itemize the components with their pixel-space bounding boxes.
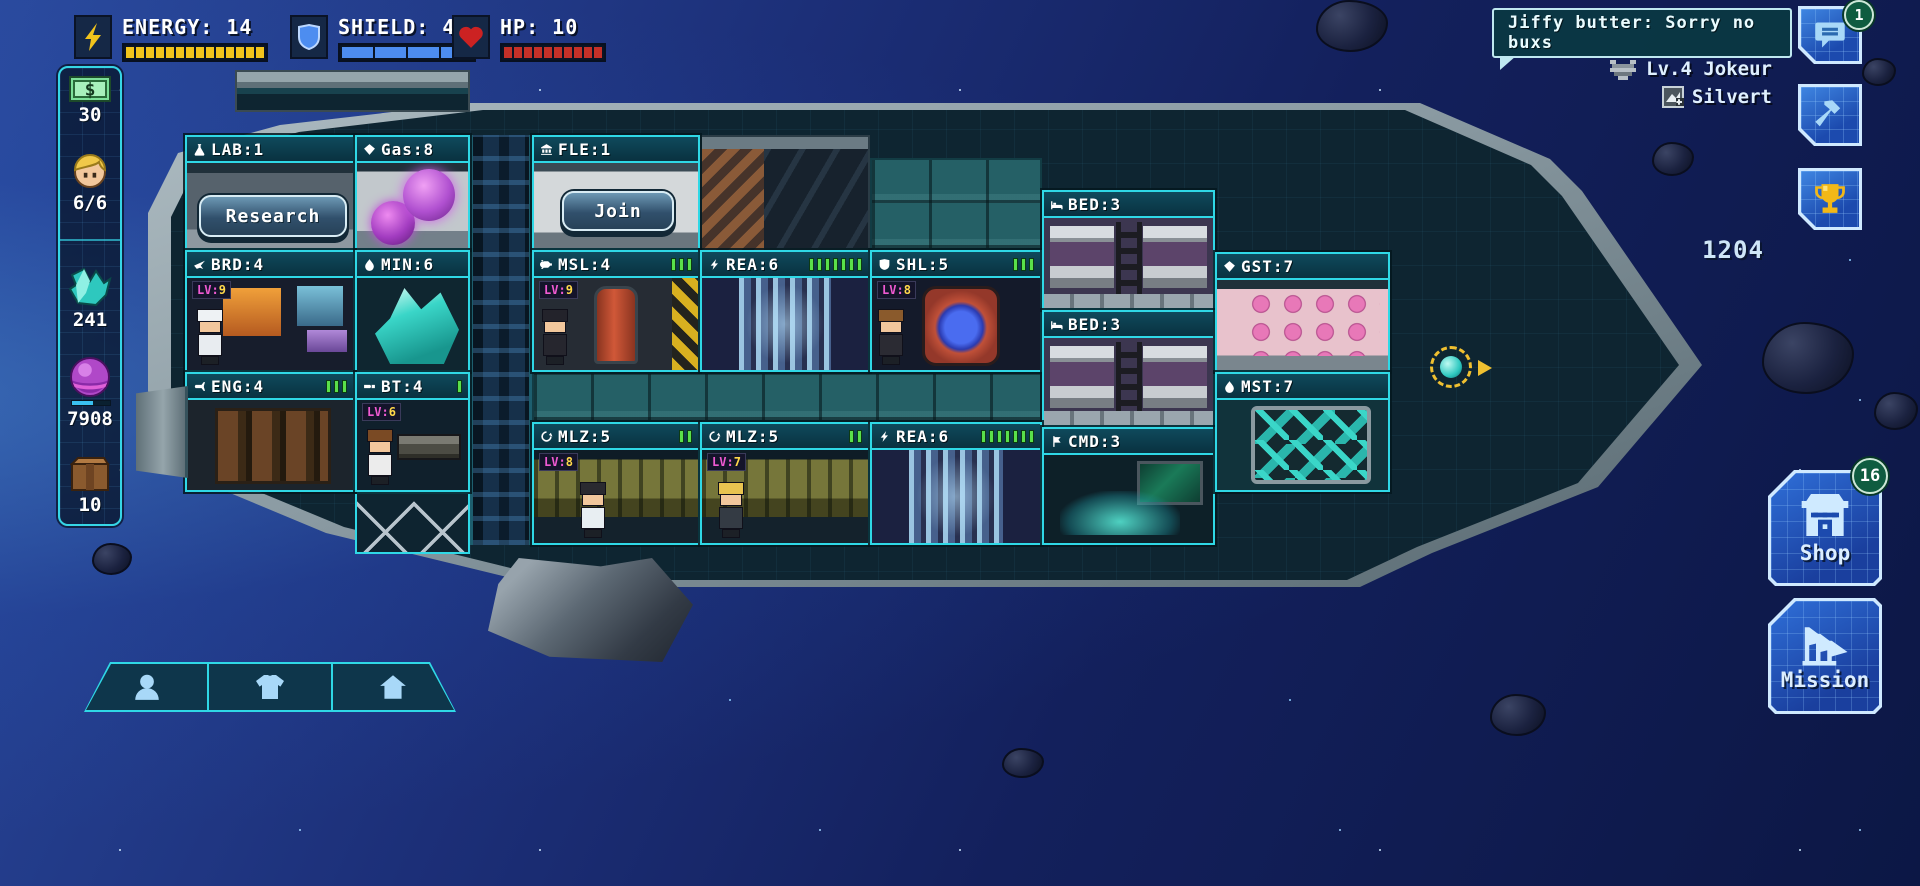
room-label: REA:6 — [896, 427, 949, 446]
mission-flags-icon — [1798, 620, 1852, 666]
shield-icon — [878, 258, 891, 271]
room-header: BED:3 — [1044, 192, 1213, 218]
room-body — [1217, 400, 1388, 490]
elevator-shaft — [470, 135, 532, 545]
build-button[interactable] — [1798, 84, 1862, 146]
power-bars — [679, 430, 692, 443]
hp-bar — [500, 43, 606, 62]
trophy-button[interactable] — [1798, 168, 1862, 230]
ship-name-row: Lv.4 Jokeur — [1608, 58, 1772, 80]
hp-status: HP: 10 — [452, 15, 606, 62]
room-body: LV:7 — [702, 450, 868, 543]
room-bt[interactable]: BT:4LV:6 — [355, 372, 470, 492]
room-header: CMD:3 — [1044, 429, 1213, 455]
xp-bar — [71, 400, 111, 406]
bunk-bed — [1143, 346, 1207, 408]
bed-icon — [1050, 198, 1063, 211]
shield-status: SHIELD: 4 — [290, 15, 476, 62]
loot-arrow-icon — [1478, 360, 1492, 376]
energy-icon — [74, 15, 112, 59]
asteroid — [1862, 58, 1896, 86]
room-gst[interactable]: GST:7 — [1215, 252, 1390, 372]
room-eng[interactable]: ENG:4 — [185, 372, 355, 492]
crew-member[interactable] — [540, 311, 570, 365]
room-cmd[interactable]: CMD:3 — [1042, 427, 1215, 545]
room-label: MST:7 — [1241, 377, 1294, 396]
energy-bar — [122, 43, 268, 62]
room-mlz2[interactable]: MLZ:5LV:7 — [700, 422, 870, 545]
chat-bubble-tail — [1500, 56, 1516, 70]
room-header: MSL:4 — [534, 252, 698, 278]
mission-button[interactable]: Mission — [1768, 598, 1882, 714]
reactor-core — [739, 278, 832, 370]
outfit-menu-button[interactable] — [207, 664, 330, 710]
bank-icon — [540, 143, 553, 156]
room-header: ENG:4 — [187, 374, 353, 400]
shop-label: Shop — [1800, 541, 1851, 565]
game-screen: ENERGY: 14 SHIELD: 4 HP: 10 $ 30 6/6 — [0, 0, 1920, 886]
power-bars — [849, 430, 862, 443]
room-header: MLZ:5 — [702, 424, 868, 450]
room-header: BRD:4 — [187, 252, 353, 278]
room-bed1[interactable]: BED:3 — [1042, 190, 1215, 310]
room-body: LV:8 — [872, 278, 1040, 370]
room-label: MLZ:5 — [558, 427, 611, 446]
power-bars — [326, 380, 347, 393]
room-bed2[interactable]: BED:3 — [1042, 310, 1215, 427]
level-badge: LV:9 — [192, 281, 231, 299]
ship-level-name: Lv.4 Jokeur — [1646, 58, 1772, 80]
trophy-icon — [1813, 182, 1847, 216]
level-badge: LV:6 — [362, 403, 401, 421]
shield-icon — [290, 15, 328, 59]
level-badge: LV:8 — [539, 453, 578, 471]
room-label: BT:4 — [381, 377, 424, 396]
room-label: MIN:6 — [381, 255, 434, 274]
bunk-bed — [1050, 226, 1114, 288]
reactor-core — [909, 450, 1003, 543]
resource-gas[interactable]: 7908 — [67, 356, 113, 430]
crew-member[interactable] — [876, 311, 906, 365]
room-rea2[interactable]: REA:6 — [870, 422, 1042, 545]
room-header: REA:6 — [702, 252, 868, 278]
shield-generator — [922, 286, 1000, 366]
chat-badge: 1 — [1844, 0, 1874, 30]
room-header: MIN:6 — [357, 252, 468, 278]
power-bars — [671, 258, 692, 271]
crate-icon — [70, 456, 110, 492]
room-msl[interactable]: MSL:4LV:9 — [532, 250, 700, 372]
room-header: SHL:5 — [872, 252, 1040, 278]
heart-icon — [452, 15, 490, 59]
gem-icon — [1223, 260, 1236, 273]
power-bars — [981, 430, 1034, 443]
mineral-crystal — [375, 288, 459, 364]
bed-floor — [1044, 294, 1213, 308]
room-shl[interactable]: SHL:5LV:8 — [870, 250, 1042, 372]
gear-icon — [540, 430, 553, 443]
room-body — [1044, 455, 1213, 543]
loot-orb[interactable] — [1428, 342, 1492, 396]
crew-member[interactable] — [578, 484, 608, 538]
resource-supplies[interactable]: 10 — [70, 456, 110, 516]
room-body — [1217, 280, 1388, 370]
room-body — [1044, 218, 1213, 308]
power-bars — [1013, 258, 1034, 271]
mineral-icon — [68, 267, 112, 307]
asteroid — [1490, 694, 1546, 736]
ship-antenna — [235, 70, 470, 112]
droplet-icon — [363, 258, 376, 271]
crew-member[interactable] — [716, 484, 746, 538]
bunk-bed — [1143, 226, 1207, 288]
room-header: BT:4 — [357, 374, 468, 400]
loot-core — [1440, 356, 1462, 378]
room-lab[interactable]: LAB:1Research — [185, 135, 355, 250]
room-body: Join — [534, 163, 698, 248]
room-min[interactable]: MIN:6 — [355, 250, 470, 372]
missile-icon — [540, 258, 553, 271]
room-mlz1[interactable]: MLZ:5LV:8 — [532, 422, 700, 545]
plane-icon — [193, 258, 206, 271]
room-label: BED:3 — [1068, 315, 1121, 334]
room-label: BED:3 — [1068, 195, 1121, 214]
room-brd[interactable]: BRD:4LV:9 — [185, 250, 355, 372]
level-badge: LV:8 — [877, 281, 916, 299]
room-label: BRD:4 — [211, 255, 264, 274]
gas-orb — [403, 169, 455, 221]
energy-status: ENERGY: 14 — [74, 15, 268, 62]
svg-text:$: $ — [85, 80, 96, 101]
bottom-toolbar — [84, 662, 456, 712]
floor-tiles — [355, 492, 470, 554]
chat-message-bubble[interactable]: Jiffy butter: Sorry no buxs — [1492, 8, 1792, 58]
room-body: LV:9 — [187, 278, 353, 370]
room-body — [357, 163, 468, 248]
bolt-icon — [708, 258, 721, 271]
crew-menu-button[interactable] — [86, 664, 207, 710]
sidebar-divider — [60, 239, 120, 241]
room-label: ENG:4 — [211, 377, 264, 396]
money-value: 30 — [79, 104, 102, 126]
gas-storage-bubbles — [1245, 290, 1380, 356]
room-body — [1044, 338, 1213, 425]
room-body: LV:9 — [534, 278, 698, 370]
room-header: MLZ:5 — [534, 424, 698, 450]
crew-count: 6/6 — [73, 192, 107, 214]
flag-icon — [1050, 435, 1063, 448]
resource-crew[interactable]: 6/6 — [71, 152, 109, 214]
room-mst[interactable]: MST:7 — [1215, 372, 1390, 492]
shirt-icon — [254, 673, 286, 701]
asteroid — [1316, 0, 1388, 52]
shop-badge: 16 — [1852, 458, 1888, 494]
resource-money[interactable]: $ 30 — [69, 76, 111, 126]
minerals-value: 241 — [73, 309, 107, 331]
asteroid — [1002, 748, 1044, 778]
level-badge: LV:7 — [707, 453, 746, 471]
ship-icon — [1608, 58, 1638, 80]
bullet-icon — [363, 380, 376, 393]
armor-plating — [870, 158, 1042, 250]
bunk-bed — [1050, 346, 1114, 408]
home-icon — [378, 673, 408, 701]
room-header: Gas:8 — [357, 137, 468, 163]
resource-minerals[interactable]: 241 — [68, 267, 112, 331]
room-label: MLZ:5 — [726, 427, 779, 446]
energy-label: ENERGY: 14 — [122, 15, 268, 39]
hammer-icon — [1813, 98, 1847, 132]
flask-icon — [193, 143, 206, 156]
power-bars — [457, 380, 462, 393]
room-label: REA:6 — [726, 255, 779, 274]
room-label: GST:7 — [1241, 257, 1294, 276]
room-label: SHL:5 — [896, 255, 949, 274]
room-header: BED:3 — [1044, 312, 1213, 338]
droplet-icon — [1223, 380, 1236, 393]
resource-sidebar: $ 30 6/6 241 7908 10 — [58, 66, 122, 526]
store-icon — [1797, 491, 1853, 539]
room-header: REA:6 — [872, 424, 1040, 450]
hazard-stripes — [672, 278, 698, 370]
room-body: Research — [187, 163, 353, 248]
room-body — [872, 450, 1040, 543]
bolt-icon — [878, 430, 891, 443]
room-body: LV:8 — [534, 450, 698, 543]
engine-icon — [193, 380, 206, 393]
gem-icon — [363, 143, 376, 156]
mineral-storage-vat — [1251, 406, 1371, 484]
room-gas[interactable]: Gas:8 — [355, 135, 470, 250]
missile-tube — [594, 286, 638, 364]
research-button[interactable]: Research — [199, 195, 347, 237]
holo-table — [1060, 491, 1180, 535]
level-badge: LV:9 — [539, 281, 578, 299]
crew-weapon — [397, 434, 461, 460]
mission-label: Mission — [1781, 668, 1870, 692]
gas-value: 7908 — [67, 408, 113, 430]
room-rea1[interactable]: REA:6 — [700, 250, 870, 372]
asteroid — [1762, 322, 1854, 394]
bunk-ladder — [1116, 342, 1142, 422]
room-fle[interactable]: FLE:1Join — [532, 135, 700, 250]
asteroid — [92, 543, 132, 575]
cash-icon: $ — [69, 76, 111, 102]
crew-icon — [71, 152, 109, 190]
bunk-ladder — [1116, 222, 1142, 302]
armor-plating — [532, 372, 1042, 422]
crew-bust-icon — [132, 672, 162, 702]
room-header: FLE:1 — [534, 137, 698, 163]
room-label: MSL:4 — [558, 255, 611, 274]
room-body — [702, 278, 868, 370]
room-body — [187, 400, 353, 490]
join-button[interactable]: Join — [562, 191, 674, 231]
supplies-value: 10 — [79, 494, 102, 516]
gear-icon — [708, 430, 721, 443]
room-header: MST:7 — [1217, 374, 1388, 400]
room-label: Gas:8 — [381, 140, 434, 159]
asteroid — [1874, 392, 1918, 430]
room-body — [357, 278, 468, 370]
room-header: LAB:1 — [187, 137, 353, 163]
room-label: FLE:1 — [558, 140, 611, 159]
room-label: CMD:3 — [1068, 432, 1121, 451]
room-body: LV:6 — [357, 400, 468, 490]
crew-member[interactable] — [195, 311, 225, 365]
engine-coils — [215, 408, 331, 484]
crew-member[interactable] — [365, 431, 395, 485]
asteroid-large — [488, 558, 693, 662]
bed-floor — [1044, 411, 1213, 425]
home-menu-button[interactable] — [331, 664, 454, 710]
room-label: LAB:1 — [211, 140, 264, 159]
hp-label: HP: 10 — [500, 15, 606, 39]
bed-icon — [1050, 318, 1063, 331]
window-bay — [700, 135, 870, 250]
power-bars — [809, 258, 862, 271]
chat-bubble-icon — [1813, 20, 1847, 50]
engine-nozzle — [136, 386, 188, 478]
gas-orb-icon — [69, 356, 111, 398]
room-header: GST:7 — [1217, 254, 1388, 280]
